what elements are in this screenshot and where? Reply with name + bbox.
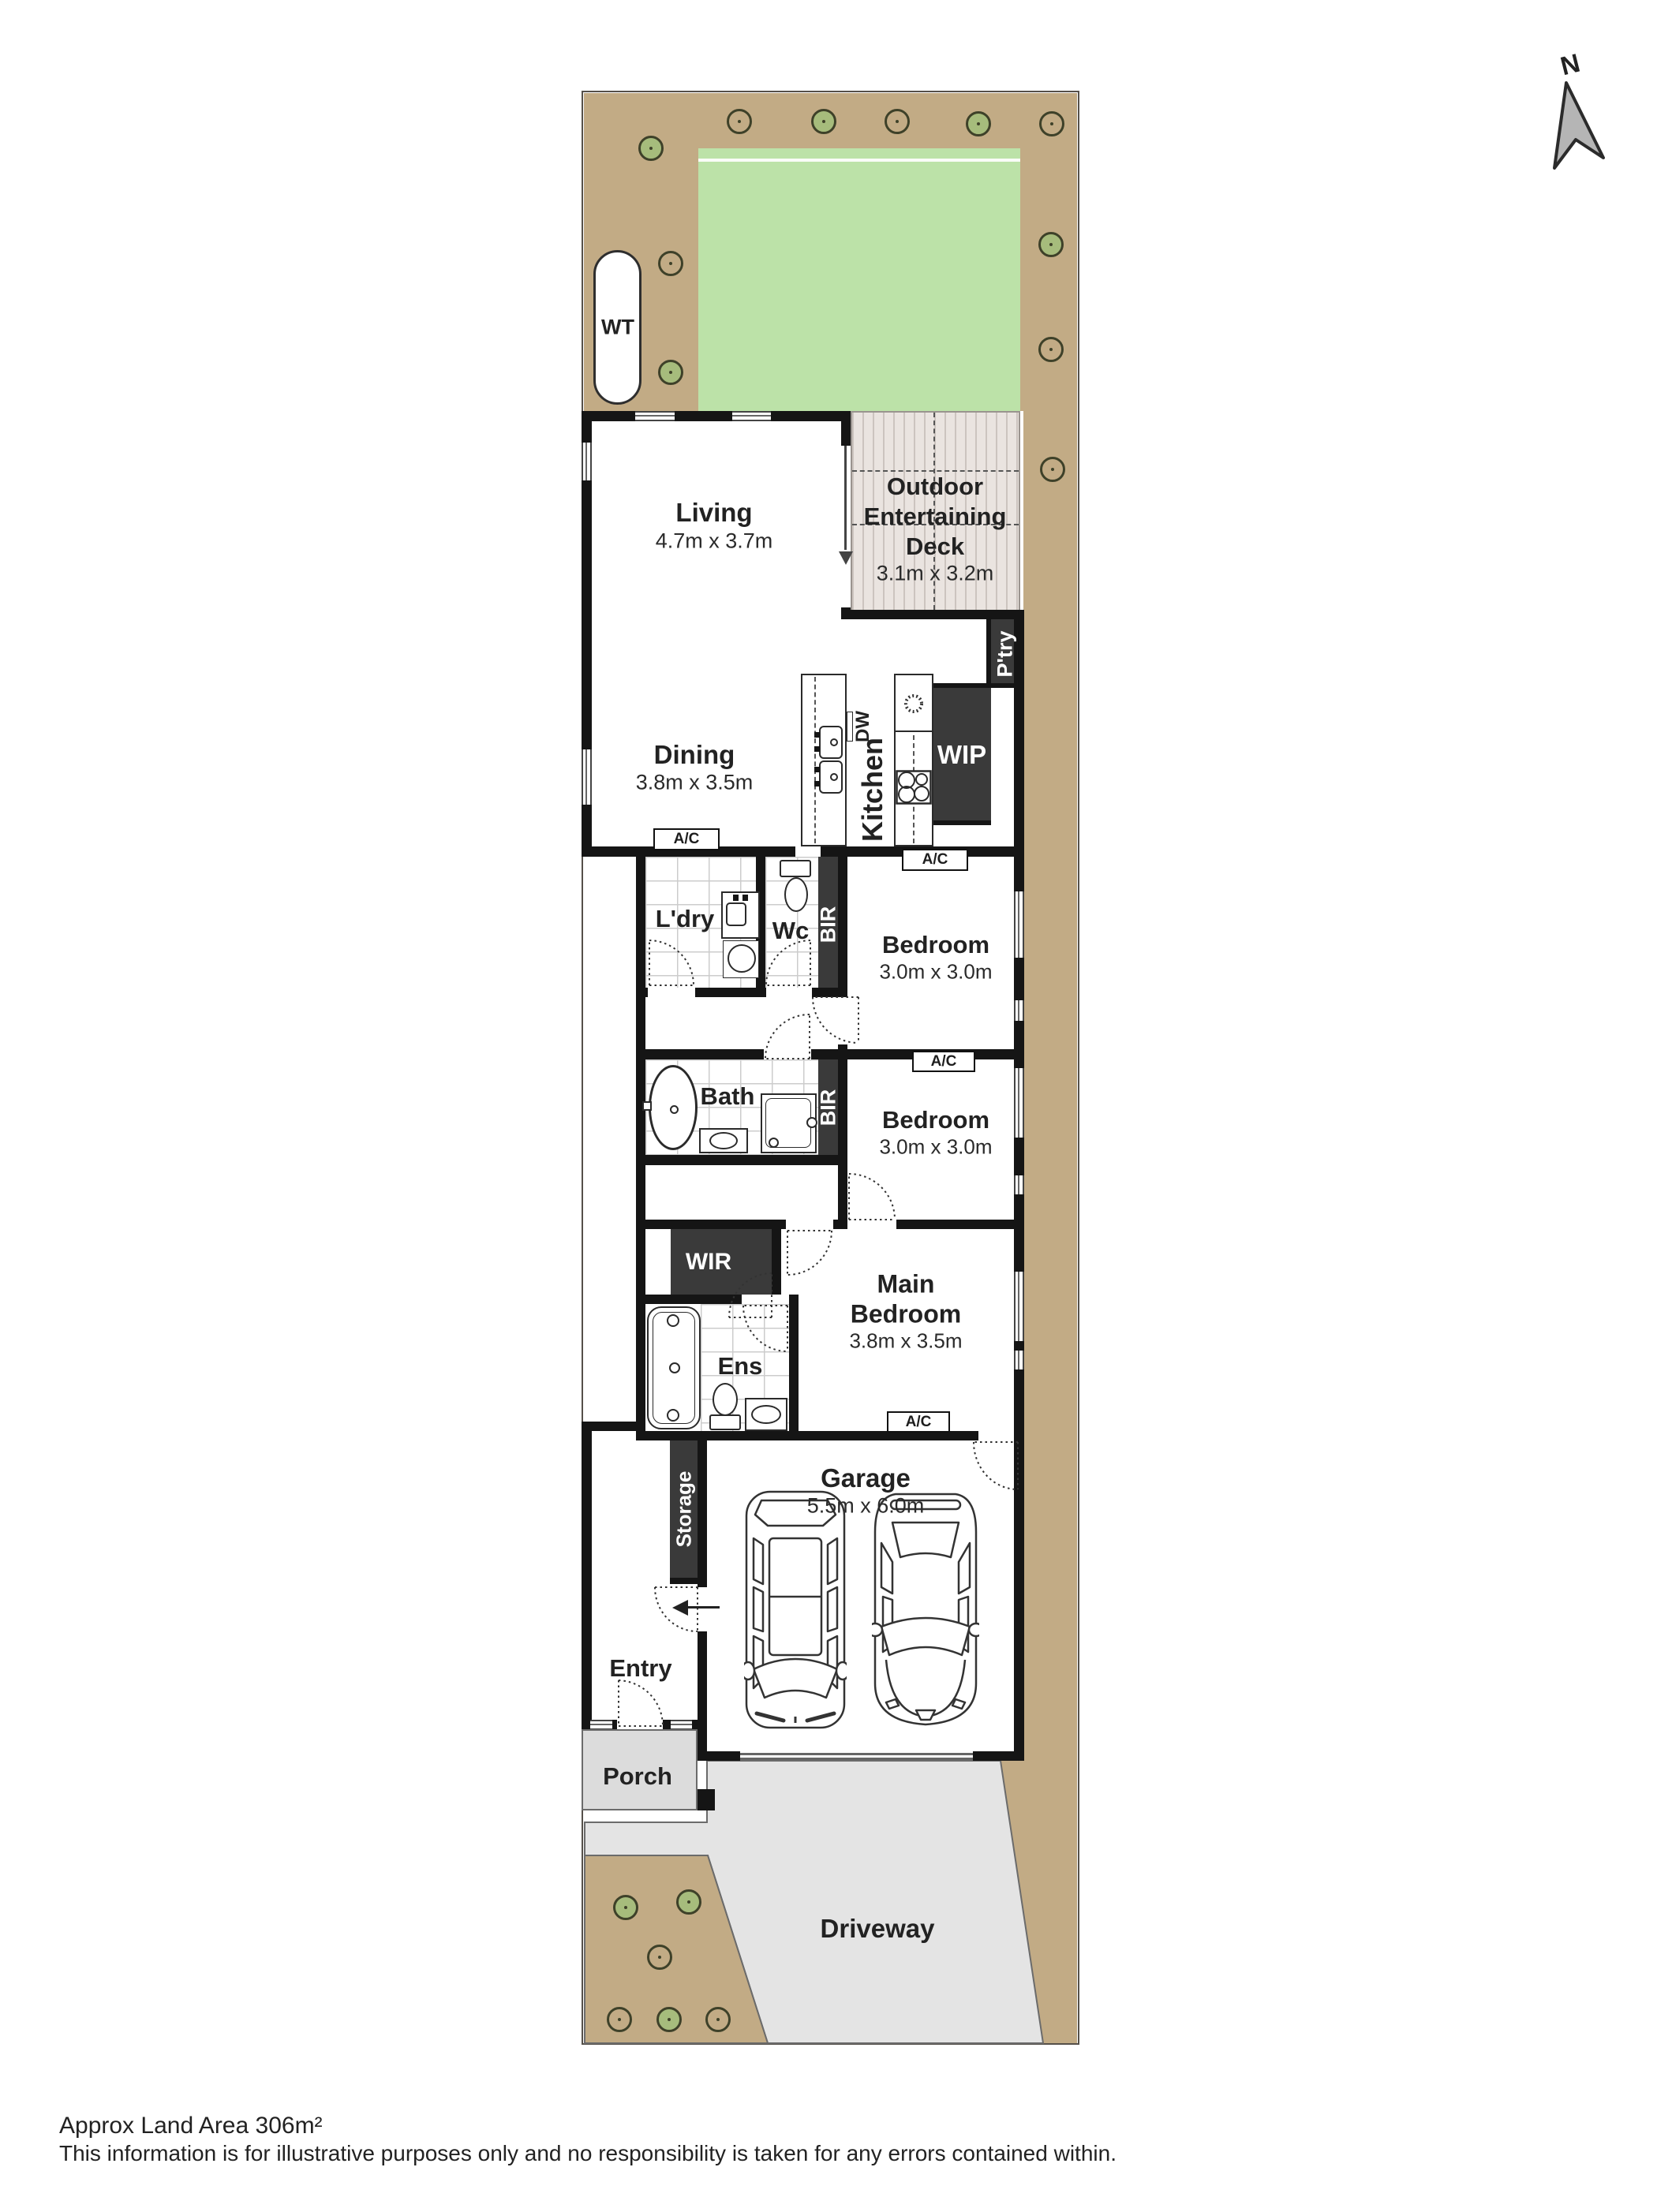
ac-label: A/C — [931, 1053, 957, 1071]
door-swing — [648, 939, 695, 987]
tree — [638, 136, 664, 161]
tree — [676, 1889, 701, 1915]
dining-dims: 3.8m x 3.5m — [636, 771, 754, 795]
storage-label: Storage — [672, 1471, 697, 1548]
garden-right-band — [1023, 411, 1077, 1761]
ac-label: A/C — [922, 851, 948, 869]
tub-tap — [642, 1101, 652, 1111]
main-bedroom-label-1: Main — [877, 1270, 935, 1299]
toilet-cistern — [780, 860, 811, 877]
tree — [1038, 232, 1064, 257]
kitchen-label: Kitchen — [856, 738, 889, 842]
tree — [1039, 111, 1064, 136]
door-swing — [786, 1229, 833, 1276]
bath-label: Bath — [701, 1082, 755, 1111]
floor-plan-page: WT Outdoor Entertaining Deck 3.1m x 3.2m — [0, 0, 1657, 2212]
tree — [1040, 457, 1065, 482]
tree — [658, 360, 683, 385]
door-swing — [764, 1013, 811, 1060]
tap — [733, 895, 739, 901]
wir-label: WIR — [686, 1249, 731, 1276]
tree — [1038, 337, 1064, 362]
living-label: Living — [675, 498, 752, 528]
bir-label: BIR — [817, 906, 841, 943]
bedroom2-label: Bedroom — [882, 1106, 989, 1134]
sink-bowl — [830, 773, 838, 781]
cooktop — [896, 770, 932, 805]
tree — [647, 1945, 672, 1970]
entry-label: Entry — [609, 1654, 671, 1683]
wc-label: Wc — [772, 917, 810, 945]
lawn-edge-line — [698, 159, 1020, 162]
ac-unit: A/C — [912, 1051, 975, 1072]
deck-dash-line — [852, 470, 1019, 472]
bedroom1-dims: 3.0m x 3.0m — [879, 960, 992, 985]
toilet-cistern — [709, 1414, 741, 1430]
porch-label: Porch — [603, 1762, 672, 1791]
lawn — [698, 148, 1020, 411]
door-swing — [847, 1172, 896, 1221]
laundry-label: L'dry — [656, 905, 715, 933]
shower-drain — [769, 1138, 779, 1148]
bir-label: BIR — [817, 1089, 841, 1127]
rangehood-fan-icon — [903, 693, 925, 715]
tap — [742, 895, 748, 901]
car-sedan — [872, 1491, 979, 1728]
dining-label: Dining — [654, 740, 735, 770]
shower-drain — [669, 1362, 680, 1373]
deck-label-3: Deck — [906, 532, 964, 561]
window — [1014, 1272, 1024, 1341]
window — [732, 411, 771, 421]
slider-arrow-icon — [839, 551, 853, 565]
garage-door — [740, 1758, 973, 1760]
bedroom2-dims: 3.0m x 3.0m — [879, 1135, 992, 1160]
window — [1014, 1068, 1024, 1138]
bedroom1-label: Bedroom — [882, 931, 989, 959]
vanity-basin — [751, 1405, 781, 1424]
window — [671, 1720, 692, 1729]
ac-unit: A/C — [887, 1411, 950, 1433]
tree — [811, 109, 836, 134]
window — [635, 411, 675, 421]
window — [590, 1720, 612, 1729]
deck-label-1: Outdoor — [887, 473, 983, 501]
deck-label-2: Entertaining — [864, 503, 1007, 531]
driveway-label: Driveway — [821, 1914, 935, 1944]
toilet-bowl — [784, 877, 808, 912]
garage-door — [740, 1753, 973, 1755]
window — [1014, 1000, 1024, 1021]
sliding-door — [844, 446, 847, 550]
ac-label: A/C — [674, 831, 700, 848]
pantry-label: P'try — [993, 631, 1018, 678]
door-swing — [617, 1679, 664, 1728]
garage-label: Garage — [821, 1463, 911, 1493]
deck-dims: 3.1m x 3.2m — [877, 562, 994, 586]
tree — [658, 251, 683, 276]
footer-disclaimer: This information is for illustrative pur… — [59, 2141, 1117, 2166]
tree — [885, 109, 910, 134]
tree — [705, 2007, 731, 2032]
tree — [613, 1895, 638, 1920]
ac-unit: A/C — [902, 849, 968, 871]
car-wagon — [744, 1489, 847, 1730]
tap — [814, 732, 820, 738]
trough-basin — [726, 902, 746, 926]
water-tank-label: WT — [601, 316, 634, 340]
tree — [727, 109, 752, 134]
door-swing — [972, 1440, 1019, 1491]
tree — [607, 2007, 632, 2032]
main-bedroom-dims: 3.8m x 3.5m — [849, 1329, 962, 1354]
window — [582, 749, 592, 805]
door-swing — [765, 939, 812, 987]
entry-arrow-line — [686, 1606, 720, 1609]
footer-land-area: Approx Land Area 306m² — [59, 2113, 323, 2139]
wip-label: WIP — [937, 740, 986, 770]
tub-drain — [670, 1105, 679, 1114]
ac-unit: A/C — [653, 828, 720, 850]
porch-pier — [698, 1789, 715, 1810]
door-swing — [811, 996, 860, 1044]
window — [582, 443, 592, 480]
window — [1014, 891, 1024, 958]
window — [1014, 1351, 1024, 1369]
island-dash — [814, 677, 816, 843]
tree — [656, 2007, 682, 2032]
vanity-basin — [709, 1132, 738, 1149]
main-bedroom-label-2: Bedroom — [851, 1300, 961, 1329]
garage-dims: 5.5m x 6.0m — [807, 1494, 925, 1519]
window — [1014, 1175, 1024, 1194]
shower-rose — [667, 1409, 679, 1422]
living-dims: 4.7m x 3.7m — [656, 529, 773, 554]
tap — [814, 781, 820, 787]
ac-label: A/C — [906, 1414, 932, 1431]
ens-label: Ens — [718, 1352, 763, 1381]
washer-drum — [728, 944, 756, 973]
toilet-bowl — [713, 1383, 738, 1416]
door-swing — [728, 1272, 773, 1319]
tree — [966, 111, 991, 136]
tap — [814, 767, 820, 772]
entry-arrow-icon — [672, 1600, 688, 1616]
sink-bowl — [830, 738, 838, 746]
north-arrow-icon — [1539, 32, 1641, 189]
shower-rose — [667, 1314, 679, 1327]
tap — [814, 746, 820, 752]
